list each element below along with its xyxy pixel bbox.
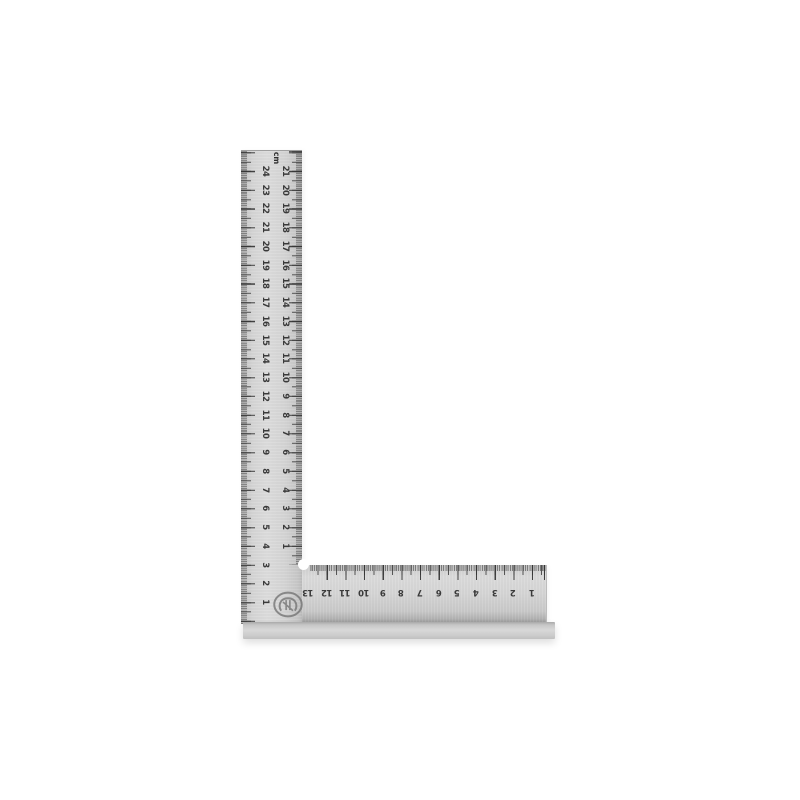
vertical-blade: 242322212019181716151413121110987654321 … [241, 150, 302, 624]
scale-number: 21 [259, 219, 271, 235]
scale-number: 9 [259, 444, 271, 460]
scale-number: 7 [412, 586, 428, 598]
scale-number: 3 [259, 557, 271, 573]
scale-number: 12 [279, 332, 291, 348]
scale-number: 10 [259, 425, 271, 441]
horizontal-scale: 13121110987654321 [302, 565, 546, 623]
product-photo: 242322212019181716151413121110987654321 … [0, 0, 800, 800]
scale-number: 1 [279, 538, 291, 554]
scale-number: 2 [259, 575, 271, 591]
vertical-right-mm-ticks [296, 151, 302, 565]
scale-number: 1 [524, 586, 540, 598]
vertical-inner-scale: 212019181716151413121110987654321 [241, 151, 302, 624]
scale-number: 19 [279, 200, 291, 216]
scale-number: 13 [259, 369, 271, 385]
scale-number: 4 [279, 482, 291, 498]
scale-number: 16 [279, 257, 291, 273]
horizontal-blade: 13121110987654321 [302, 565, 547, 623]
scale-number: 2 [279, 519, 291, 535]
scale-number: 7 [259, 482, 271, 498]
scale-number: 3 [279, 500, 291, 516]
scale-number: 20 [259, 238, 271, 254]
scale-number: 8 [279, 407, 291, 423]
scale-number: 6 [431, 586, 447, 598]
manufacturer-logo-icon [273, 590, 304, 620]
scale-number: 13 [279, 313, 291, 329]
scale-number: 9 [279, 388, 291, 404]
scale-number: 14 [259, 350, 271, 366]
scale-number: 18 [279, 219, 291, 235]
vertical-left-half-cm-ticks [241, 151, 251, 624]
scale-number: 21 [279, 163, 291, 179]
scale-number: 15 [279, 275, 291, 291]
scale-number: 18 [259, 275, 271, 291]
vertical-right-cm-ticks [289, 151, 302, 565]
scale-number: 3 [487, 586, 503, 598]
vertical-outer-scale: 242322212019181716151413121110987654321 [241, 151, 302, 624]
scale-number: 6 [259, 500, 271, 516]
scale-number: 2 [505, 586, 521, 598]
scale-number: 11 [259, 407, 271, 423]
scale-number: 22 [259, 200, 271, 216]
scale-number: 6 [279, 444, 291, 460]
scale-number: 4 [259, 538, 271, 554]
scale-number: 4 [468, 586, 484, 598]
scale-number: 19 [259, 257, 271, 273]
scale-number: 5 [449, 586, 465, 598]
scale-number: 12 [259, 388, 271, 404]
corner-notch [298, 559, 309, 570]
scale-number: 23 [259, 182, 271, 198]
scale-number: 24 [259, 163, 271, 179]
scale-number: 10 [356, 586, 372, 598]
scale-number: 11 [279, 350, 291, 366]
scale-number: 5 [259, 519, 271, 535]
vertical-left-cm-ticks [241, 151, 255, 624]
scale-number: 17 [259, 294, 271, 310]
scale-number: 11 [337, 586, 353, 598]
scale-number: 14 [279, 294, 291, 310]
scale-number: 9 [375, 586, 391, 598]
scale-number: 8 [393, 586, 409, 598]
vertical-right-half-cm-ticks [292, 151, 302, 565]
scale-number: 15 [259, 332, 271, 348]
base-stock [243, 622, 555, 639]
scale-number: 7 [279, 425, 291, 441]
vertical-left-mm-ticks [241, 151, 247, 624]
scale-number: 1 [259, 594, 271, 610]
horizontal-mm-ticks [310, 565, 546, 571]
scale-number: 17 [279, 238, 291, 254]
scale-number: 12 [319, 586, 335, 598]
scale-number: 8 [259, 463, 271, 479]
unit-label: cm [271, 152, 283, 164]
horizontal-half-cm-ticks [310, 565, 546, 575]
scale-number: 16 [259, 313, 271, 329]
horizontal-cm-ticks [310, 565, 546, 580]
scale-number: 5 [279, 463, 291, 479]
scale-number: 20 [279, 182, 291, 198]
scale-number: 10 [279, 369, 291, 385]
